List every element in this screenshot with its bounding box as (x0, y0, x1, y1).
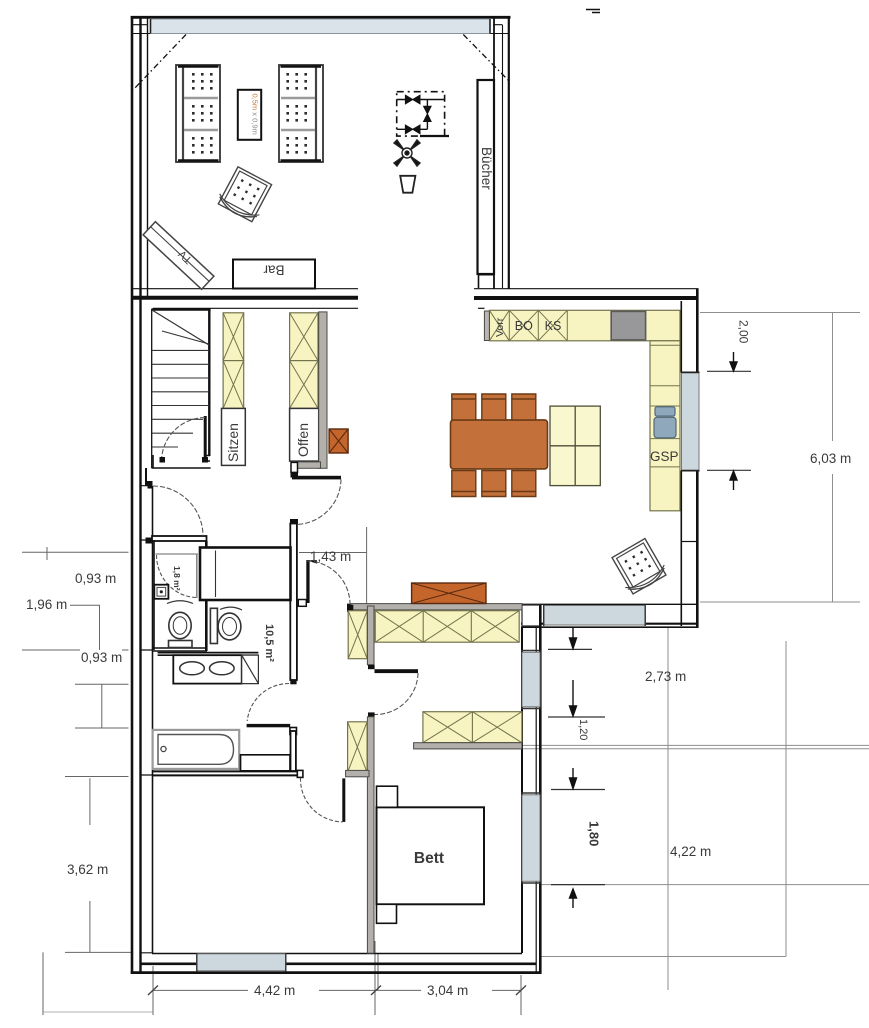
svg-text:KS: KS (545, 319, 562, 333)
svg-text:Sitzen: Sitzen (225, 423, 241, 462)
svg-text:GSP: GSP (650, 449, 679, 464)
svg-text:BO: BO (515, 319, 533, 333)
svg-text:3,04 m: 3,04 m (427, 983, 468, 998)
svg-text:0,93 m: 0,93 m (75, 571, 116, 586)
svg-text:3,62 m: 3,62 m (67, 862, 108, 877)
svg-text:Vorr: Vorr (494, 317, 506, 337)
svg-text:0,5m x 0,9m: 0,5m x 0,9m (251, 94, 260, 135)
svg-text:1,43 m: 1,43 m (310, 549, 351, 564)
svg-text:10,5 m²: 10,5 m² (263, 624, 275, 662)
svg-text:Bett: Bett (414, 850, 444, 867)
svg-text:Offen: Offen (295, 423, 311, 457)
svg-text:Bücher: Bücher (479, 147, 494, 190)
svg-text:4,22 m: 4,22 m (670, 844, 711, 859)
svg-text:1,96 m: 1,96 m (26, 597, 67, 612)
svg-text:2,00: 2,00 (737, 320, 751, 344)
svg-text:6,03 m: 6,03 m (810, 451, 851, 466)
svg-text:1,8 m²: 1,8 m² (172, 566, 182, 591)
svg-text:2,73 m: 2,73 m (645, 669, 686, 684)
svg-text:1,80: 1,80 (587, 821, 602, 846)
svg-text:1,20: 1,20 (577, 719, 589, 740)
svg-text:0,93 m: 0,93 m (81, 650, 122, 665)
svg-text:Bar: Bar (263, 262, 285, 277)
svg-text:4,42 m: 4,42 m (254, 983, 295, 998)
